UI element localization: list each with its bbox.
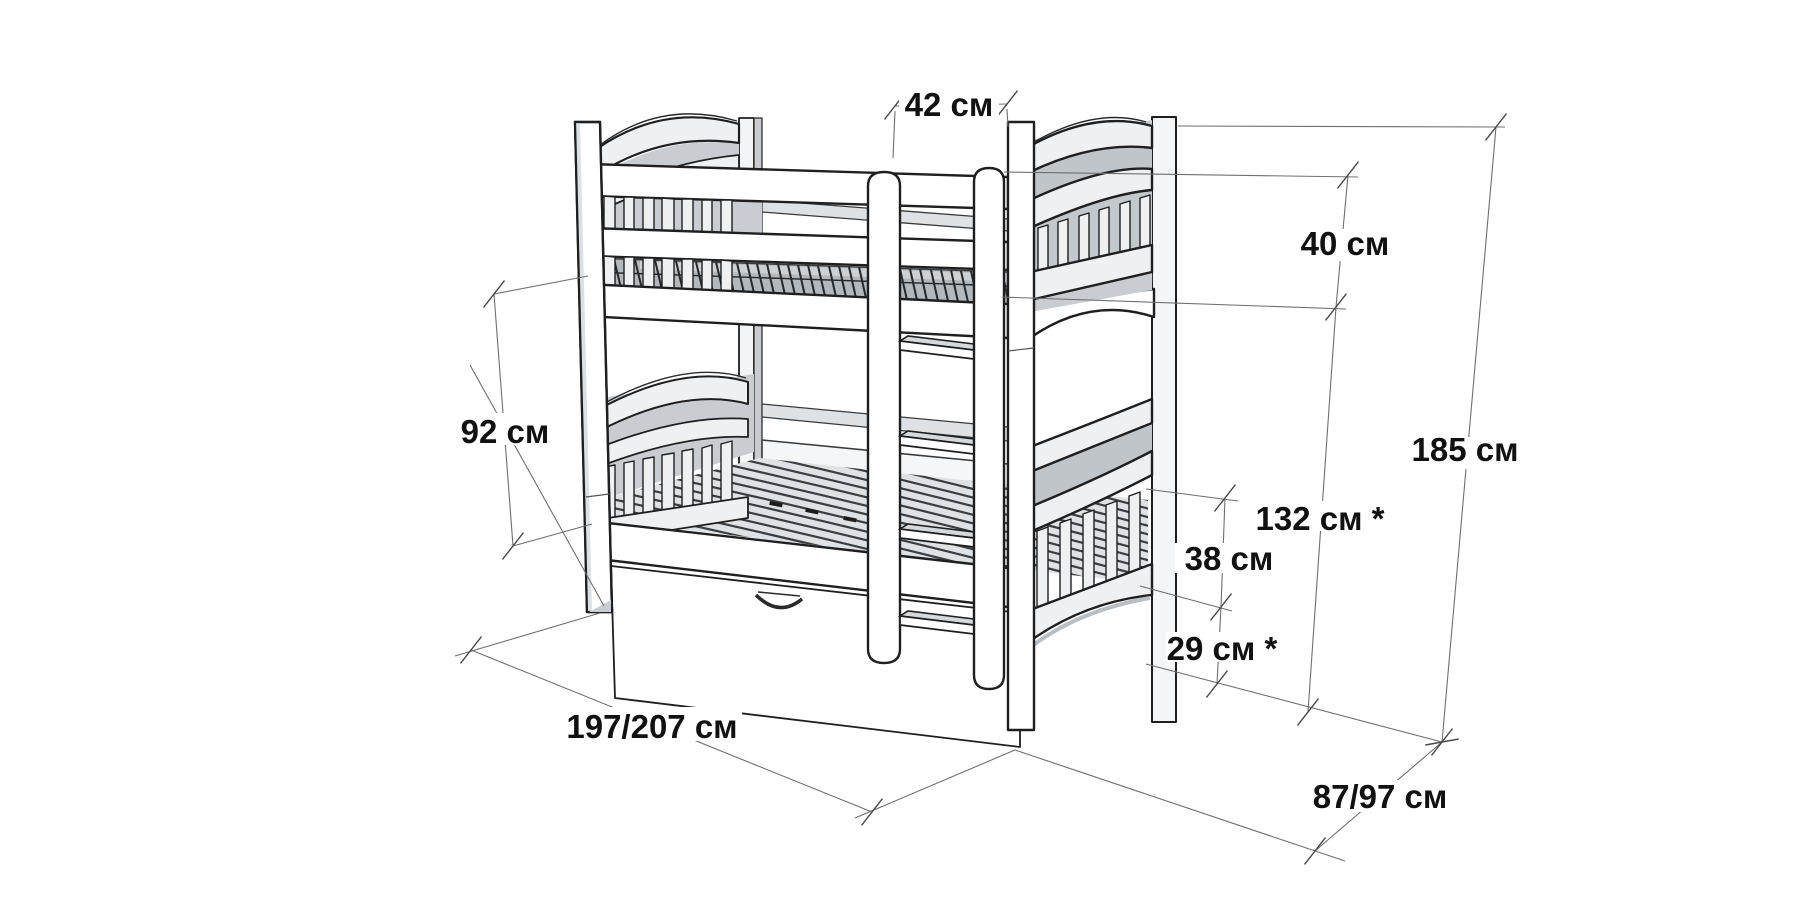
svg-text:40 см: 40 см xyxy=(1301,225,1390,262)
svg-text:132 см *: 132 см * xyxy=(1255,500,1384,537)
svg-text:38 см: 38 см xyxy=(1185,540,1274,577)
svg-text:185 см: 185 см xyxy=(1412,431,1519,468)
svg-text:87/97 см: 87/97 см xyxy=(1313,778,1448,815)
svg-text:42 см: 42 см xyxy=(905,86,994,123)
svg-text:197/207 см: 197/207 см xyxy=(566,708,737,745)
svg-text:29 см *: 29 см * xyxy=(1167,630,1278,667)
svg-text:92 см: 92 см xyxy=(461,413,550,450)
